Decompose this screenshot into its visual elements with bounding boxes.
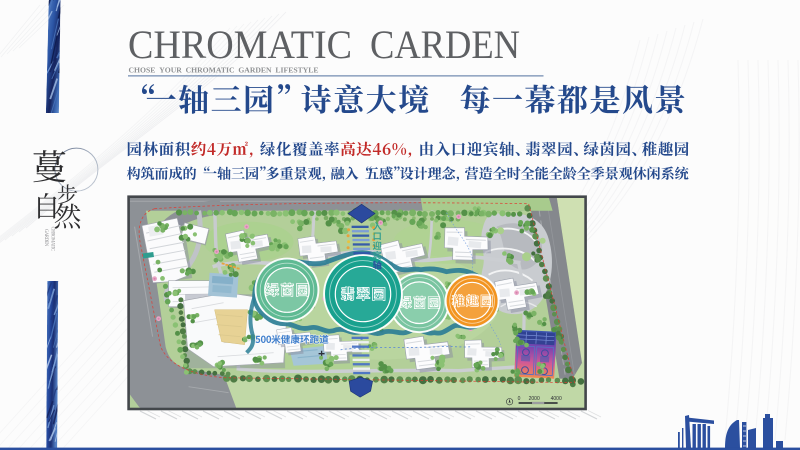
- svg-text:4000: 4000: [551, 396, 562, 402]
- svg-text:CARDEN: CARDEN: [370, 22, 520, 67]
- svg-text:0: 0: [518, 396, 521, 402]
- svg-text:2000: 2000: [529, 396, 540, 402]
- svg-text:CHROMATIC: CHROMATIC: [128, 22, 352, 67]
- svg-text:GARDEN: GARDEN: [43, 229, 48, 247]
- svg-text:CHOSE YOUR CHROMATIC GARDEN: CHOSE YOUR CHROMATIC GARDEN LIFESTYLE: [129, 66, 319, 75]
- svg-text:CHROMATIC: CHROMATIC: [50, 227, 55, 252]
